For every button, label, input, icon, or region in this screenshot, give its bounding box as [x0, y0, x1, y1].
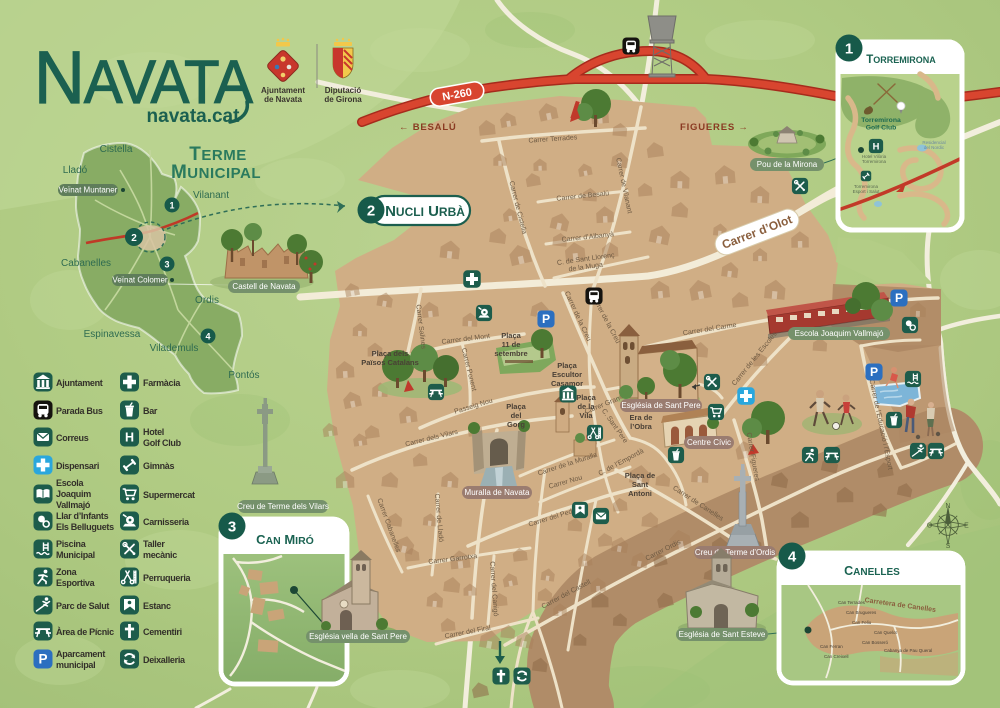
svg-text:Correus: Correus	[56, 433, 89, 443]
svg-text:Golf Club: Golf Club	[143, 438, 182, 448]
svg-text:Veïnat Colomer: Veïnat Colomer	[112, 276, 167, 285]
svg-text:Can Creixell: Can Creixell	[824, 654, 849, 659]
svg-text:CANELLES: CANELLES	[844, 564, 900, 578]
svg-text:Plaça dels: Plaça dels	[372, 349, 409, 358]
svg-text:3: 3	[164, 260, 169, 270]
svg-text:Església de Sant Esteve: Església de Sant Esteve	[679, 630, 766, 639]
svg-text:Farmàcia: Farmàcia	[143, 378, 181, 388]
svg-text:Joaquim: Joaquim	[56, 489, 91, 499]
svg-text:TORREMIRONA: TORREMIRONA	[866, 54, 936, 66]
svg-text:Vilademuls: Vilademuls	[150, 343, 199, 354]
svg-text:Can Bosseró: Can Bosseró	[862, 640, 889, 645]
svg-text:Plaça: Plaça	[506, 402, 526, 411]
svg-text:de Navata: de Navata	[264, 95, 302, 104]
svg-text:Esport i Salut: Esport i Salut	[853, 189, 881, 194]
svg-text:O: O	[927, 522, 933, 529]
svg-text:Ordis: Ordis	[195, 295, 219, 306]
svg-text:Gimnàs: Gimnàs	[143, 461, 175, 471]
svg-text:Àrea de Pícnic: Àrea de Pícnic	[56, 627, 114, 637]
svg-text:Els Belluguets: Els Belluguets	[56, 522, 114, 532]
svg-text:del Nordic: del Nordic	[924, 145, 945, 150]
svg-text:Gorg: Gorg	[507, 420, 525, 429]
svg-text:Centre Cívic: Centre Cívic	[687, 438, 731, 447]
svg-text:Torremirona: Torremirona	[862, 159, 887, 164]
svg-text:Plaça: Plaça	[501, 331, 521, 340]
svg-text:Cabanelles: Cabanelles	[61, 258, 111, 269]
svg-text:MUNICIPAL: MUNICIPAL	[171, 162, 261, 183]
svg-text:1: 1	[845, 41, 853, 58]
svg-text:Cabanya de Pau Queral: Cabanya de Pau Queral	[884, 648, 932, 653]
svg-text:Carnisseria: Carnisseria	[143, 517, 190, 527]
svg-text:Ajuntament: Ajuntament	[56, 378, 103, 388]
svg-text:11 de: 11 de	[502, 340, 521, 349]
svg-text:Diputació: Diputació	[325, 86, 362, 95]
svg-text:Escola: Escola	[56, 478, 85, 488]
svg-text:Pou de la Mirona: Pou de la Mirona	[757, 160, 818, 169]
svg-text:Pontós: Pontós	[228, 370, 259, 381]
svg-text:Bar: Bar	[143, 406, 158, 416]
svg-text:Castell de Navata: Castell de Navata	[232, 282, 296, 291]
svg-text:Escola Joaquim Vallmajó: Escola Joaquim Vallmajó	[795, 329, 884, 338]
svg-text:4: 4	[205, 332, 210, 342]
svg-text:Espinavessa: Espinavessa	[84, 329, 141, 340]
svg-text:N: N	[946, 503, 951, 510]
svg-text:FIGUERES →: FIGUERES →	[680, 122, 749, 133]
svg-text:Antoni: Antoni	[628, 489, 652, 498]
svg-text:l’Obra: l’Obra	[630, 422, 653, 431]
svg-text:Creu de Terme d’Ordis: Creu de Terme d’Ordis	[695, 548, 775, 557]
svg-text:Can Brugueres: Can Brugueres	[846, 610, 877, 615]
svg-text:Supermercat: Supermercat	[143, 490, 195, 500]
svg-text:Zona: Zona	[56, 567, 78, 577]
svg-text:Era de: Era de	[630, 413, 653, 422]
svg-text:Veïnat Muntaner: Veïnat Muntaner	[59, 186, 118, 195]
svg-text:Piscina: Piscina	[56, 539, 87, 549]
svg-text:Hotel: Hotel	[143, 427, 164, 437]
svg-text:Vallmajó: Vallmajó	[56, 500, 91, 510]
svg-text:Can Terrades: Can Terrades	[838, 600, 866, 605]
svg-text:setembre: setembre	[494, 349, 527, 358]
svg-text:4: 4	[788, 549, 797, 566]
svg-text:Cistella: Cistella	[100, 144, 133, 155]
svg-text:de la: de la	[577, 402, 595, 411]
svg-text:3: 3	[228, 519, 236, 536]
svg-text:Vilanant: Vilanant	[193, 190, 229, 201]
svg-text:2: 2	[131, 233, 137, 244]
svg-text:Perruqueria: Perruqueria	[143, 573, 192, 583]
svg-text:Can Ferran: Can Ferran	[820, 644, 843, 649]
svg-text:CAN MIRÓ: CAN MIRÓ	[256, 532, 314, 547]
svg-text:Llar d’Infants: Llar d’Infants	[56, 511, 109, 521]
svg-text:Plaça de: Plaça de	[625, 471, 655, 480]
svg-text:Torremirona: Torremirona	[861, 117, 901, 124]
svg-text:Sant: Sant	[632, 480, 649, 489]
svg-text:Golf Club: Golf Club	[866, 125, 897, 132]
svg-text:Aparcament: Aparcament	[56, 649, 105, 659]
svg-text:Escultor: Escultor	[552, 370, 582, 379]
svg-text:del: del	[511, 411, 522, 420]
svg-text:NUCLI URBÀ: NUCLI URBÀ	[385, 203, 465, 220]
svg-text:Església vella de Sant Pere: Església vella de Sant Pere	[309, 632, 407, 641]
svg-text:Parada Bus: Parada Bus	[56, 406, 103, 416]
svg-text:Parc de Salut: Parc de Salut	[56, 601, 109, 611]
svg-text:Estanc: Estanc	[143, 601, 171, 611]
svg-text:Esportiva: Esportiva	[56, 578, 96, 588]
svg-text:1: 1	[169, 201, 174, 211]
svg-text:Can Feliu: Can Feliu	[852, 620, 872, 625]
svg-text:Dispensari: Dispensari	[56, 461, 99, 471]
svg-text:Ajuntament: Ajuntament	[261, 86, 305, 95]
svg-text:mecànic: mecànic	[143, 550, 177, 560]
svg-text:← BESALÚ: ← BESALÚ	[399, 121, 457, 133]
svg-text:Cementiri: Cementiri	[143, 627, 182, 637]
svg-text:Plaça: Plaça	[557, 361, 577, 370]
svg-text:navata.cat: navata.cat	[147, 106, 241, 127]
svg-text:de Girona: de Girona	[324, 95, 362, 104]
svg-text:Països Catalans: Països Catalans	[361, 358, 419, 367]
svg-text:Plaça: Plaça	[576, 393, 596, 402]
svg-text:2: 2	[367, 203, 375, 220]
svg-text:Taller: Taller	[143, 539, 165, 549]
svg-text:Creu de Terme dels Vilars: Creu de Terme dels Vilars	[237, 502, 329, 511]
svg-text:Can Quelot: Can Quelot	[874, 630, 898, 635]
svg-text:Lladó: Lladó	[63, 165, 88, 176]
svg-text:Església de Sant Pere: Església de Sant Pere	[621, 401, 701, 410]
svg-text:Municipal: Municipal	[56, 550, 95, 560]
svg-text:E: E	[964, 522, 969, 529]
svg-text:S: S	[946, 543, 951, 550]
svg-text:TERME: TERME	[189, 144, 246, 165]
svg-text:Deixalleria: Deixalleria	[143, 655, 186, 665]
svg-text:municipal: municipal	[56, 660, 95, 670]
svg-text:Muralla de Navata: Muralla de Navata	[465, 488, 530, 497]
svg-text:Vila: Vila	[579, 411, 593, 420]
